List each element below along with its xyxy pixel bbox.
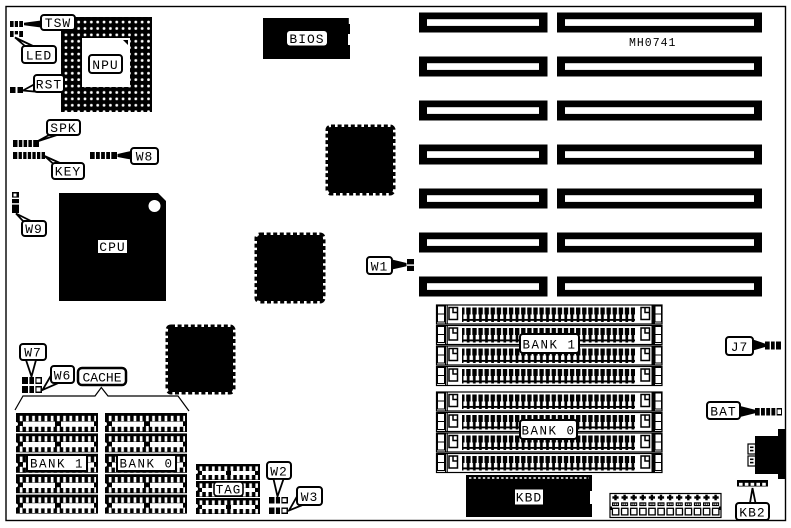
- svg-text:MH0741: MH0741: [629, 37, 676, 50]
- svg-text:J7: J7: [731, 340, 749, 355]
- svg-text:KEY: KEY: [55, 165, 81, 180]
- svg-text:KB2: KB2: [739, 506, 765, 521]
- svg-text:BAT: BAT: [710, 405, 736, 420]
- svg-text:TSW: TSW: [45, 16, 71, 31]
- svg-text:RST: RST: [36, 78, 62, 93]
- svg-text:BANK 0: BANK 0: [521, 425, 575, 439]
- svg-text:LED: LED: [26, 49, 52, 64]
- svg-text:W3: W3: [301, 490, 319, 505]
- svg-text:W6: W6: [54, 369, 72, 384]
- svg-text:KBD: KBD: [516, 491, 542, 506]
- svg-text:BIOS: BIOS: [289, 32, 324, 47]
- svg-text:W9: W9: [25, 222, 43, 237]
- svg-text:BANK 1: BANK 1: [522, 339, 576, 353]
- svg-text:BANK 1: BANK 1: [30, 458, 84, 472]
- svg-text:CPU: CPU: [99, 240, 125, 255]
- svg-text:W7: W7: [24, 346, 42, 361]
- svg-text:BANK 0: BANK 0: [119, 458, 173, 472]
- svg-text:W8: W8: [136, 150, 154, 165]
- svg-text:SPK: SPK: [50, 121, 76, 136]
- svg-text:TAG: TAG: [216, 484, 242, 498]
- svg-text:W2: W2: [270, 465, 288, 480]
- svg-text:CACHE: CACHE: [82, 371, 121, 386]
- svg-text:W1: W1: [371, 260, 389, 275]
- svg-text:NPU: NPU: [92, 58, 118, 73]
